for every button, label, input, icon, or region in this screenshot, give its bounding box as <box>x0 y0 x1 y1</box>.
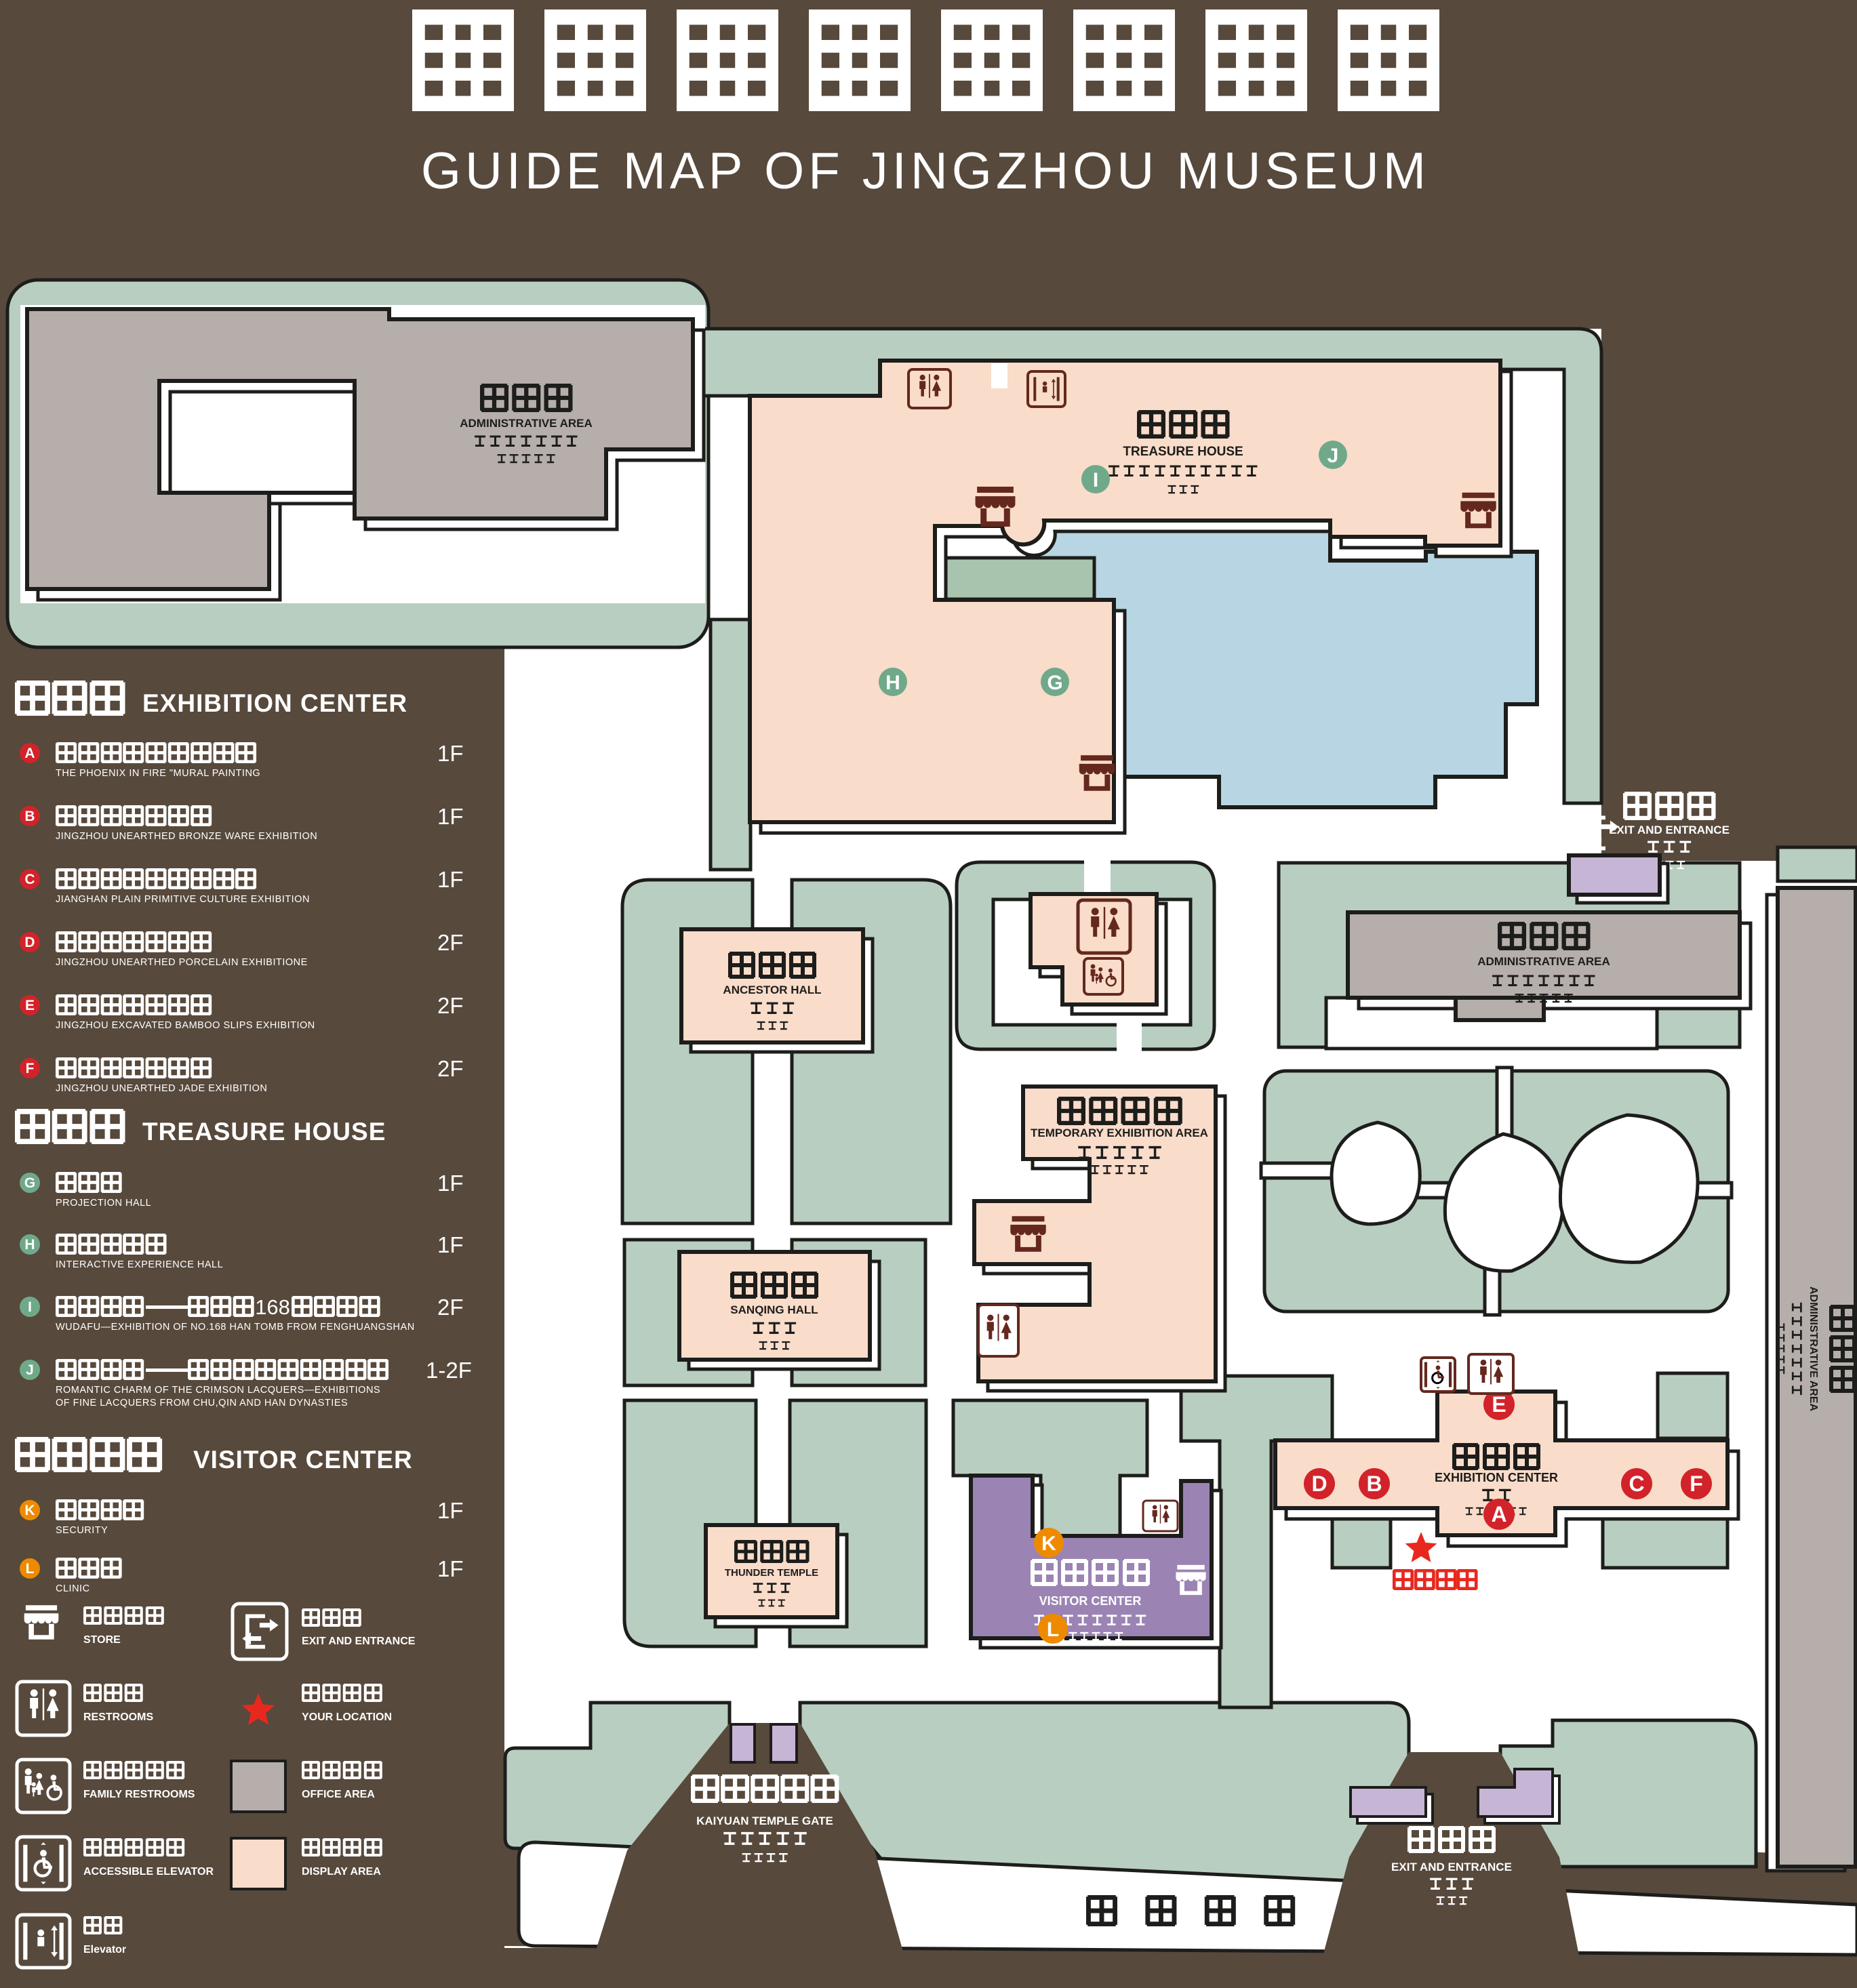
svg-text:GUIDE MAP OF JINGZHOU MUSEUM: GUIDE MAP OF JINGZHOU MUSEUM <box>421 142 1430 200</box>
svg-text:WUDAFU—EXHIBITION OF NO.168 HA: WUDAFU—EXHIBITION OF NO.168 HAN TOMB FRO… <box>56 1322 415 1333</box>
svg-text:JIANGHAN PLAIN PRIMITIVE CULTU: JIANGHAN PLAIN PRIMITIVE CULTURE EXHIBIT… <box>56 894 310 905</box>
svg-text:THE PHOENIX IN FIRE "MURAL PAI: THE PHOENIX IN FIRE "MURAL PAINTING <box>56 768 260 779</box>
svg-text:1F: 1F <box>437 1171 464 1196</box>
svg-text:JINGZHOU UNEARTHED JADE EXHIBI: JINGZHOU UNEARTHED JADE EXHIBITION <box>56 1083 267 1094</box>
svg-text:B: B <box>24 809 35 824</box>
svg-text:TREASURE HOUSE: TREASURE HOUSE <box>1123 445 1243 459</box>
svg-text:B: B <box>1366 1472 1382 1496</box>
svg-text:1F: 1F <box>437 804 464 829</box>
svg-text:D: D <box>24 935 35 950</box>
svg-text:H: H <box>24 1237 35 1253</box>
svg-text:OFFICE AREA: OFFICE AREA <box>302 1789 375 1800</box>
svg-text:ROMANTIC CHARM OF THE CRIMSON: ROMANTIC CHARM OF THE CRIMSON LACQUERS—E… <box>56 1385 380 1396</box>
svg-text:K: K <box>1041 1533 1056 1555</box>
svg-text:1F: 1F <box>437 1498 464 1523</box>
svg-text:2F: 2F <box>437 1295 464 1320</box>
svg-text:1-2F: 1-2F <box>426 1358 472 1383</box>
svg-text:K: K <box>24 1503 35 1518</box>
svg-text:L: L <box>1047 1619 1059 1641</box>
svg-text:STORE: STORE <box>83 1634 121 1646</box>
svg-text:TEMPORARY EXHIBITION AREA: TEMPORARY EXHIBITION AREA <box>1031 1127 1208 1139</box>
svg-text:F: F <box>26 1061 35 1076</box>
svg-text:KAIYUAN TEMPLE GATE: KAIYUAN TEMPLE GATE <box>696 1814 833 1827</box>
svg-text:ACCESSIBLE ELEVATOR: ACCESSIBLE ELEVATOR <box>83 1866 214 1878</box>
svg-text:A: A <box>1491 1502 1506 1526</box>
svg-text:ADMINISTRATIVE AREA: ADMINISTRATIVE AREA <box>460 417 593 430</box>
svg-text:SECURITY: SECURITY <box>56 1525 108 1536</box>
svg-text:EXIT AND ENTRANCE: EXIT AND ENTRANCE <box>302 1636 416 1647</box>
svg-text:VISITOR CENTER: VISITOR CENTER <box>193 1446 413 1474</box>
svg-text:OF FINE LACQUERS FROM CHU,QIN: OF FINE LACQUERS FROM CHU,QIN AND HAN DY… <box>56 1398 348 1408</box>
svg-text:EXHIBITION CENTER: EXHIBITION CENTER <box>1435 1471 1558 1484</box>
svg-text:TREASURE HOUSE: TREASURE HOUSE <box>142 1118 386 1145</box>
svg-text:1F: 1F <box>437 1556 464 1581</box>
svg-text:EXIT AND ENTRANCE: EXIT AND ENTRANCE <box>1391 1861 1512 1873</box>
svg-text:168: 168 <box>255 1295 290 1319</box>
svg-text:DISPLAY AREA: DISPLAY AREA <box>302 1866 381 1878</box>
svg-text:2F: 2F <box>437 1056 464 1081</box>
svg-text:1F: 1F <box>437 1232 464 1257</box>
svg-text:JINGZHOU UNEARTHED PORCELAIN E: JINGZHOU UNEARTHED PORCELAIN EXHIBITIONE <box>56 957 308 968</box>
svg-text:VISITOR CENTER: VISITOR CENTER <box>1039 1594 1142 1608</box>
svg-text:C: C <box>1629 1472 1644 1496</box>
svg-text:2F: 2F <box>437 993 464 1018</box>
svg-text:EXIT AND ENTRANCE: EXIT AND ENTRANCE <box>1609 824 1730 836</box>
svg-text:INTERACTIVE EXPERIENCE HALL: INTERACTIVE EXPERIENCE HALL <box>56 1259 223 1270</box>
svg-text:RESTROOMS: RESTROOMS <box>83 1711 153 1723</box>
svg-text:THUNDER TEMPLE: THUNDER TEMPLE <box>725 1567 818 1579</box>
svg-text:2F: 2F <box>437 930 464 955</box>
svg-text:I: I <box>28 1299 32 1315</box>
svg-text:F: F <box>1690 1472 1703 1496</box>
svg-text:C: C <box>24 872 35 887</box>
svg-text:I: I <box>1093 469 1098 491</box>
svg-text:ADMINISTRATIVE AREA: ADMINISTRATIVE AREA <box>1477 955 1610 968</box>
svg-text:E: E <box>25 998 35 1013</box>
svg-text:1F: 1F <box>437 741 464 766</box>
svg-text:PROJECTION HALL: PROJECTION HALL <box>56 1198 151 1209</box>
svg-text:JINGZHOU EXCAVATED BAMBOO SLIP: JINGZHOU EXCAVATED BAMBOO SLIPS EXHIBITI… <box>56 1020 315 1031</box>
svg-text:J: J <box>1327 445 1339 467</box>
svg-text:CLINIC: CLINIC <box>56 1583 90 1594</box>
svg-text:L: L <box>26 1561 35 1577</box>
svg-text:H: H <box>885 672 900 694</box>
svg-text:G: G <box>1047 672 1062 694</box>
svg-text:JINGZHOU UNEARTHED BRONZE WARE: JINGZHOU UNEARTHED BRONZE WARE EXHIBITIO… <box>56 831 317 842</box>
svg-text:EXHIBITION CENTER: EXHIBITION CENTER <box>142 689 407 717</box>
svg-text:E: E <box>1492 1392 1506 1417</box>
svg-text:FAMILY RESTROOMS: FAMILY RESTROOMS <box>83 1789 195 1800</box>
svg-text:SANQING HALL: SANQING HALL <box>730 1303 818 1316</box>
svg-text:ADMINISTRATIVE AREA: ADMINISTRATIVE AREA <box>1808 1286 1819 1411</box>
svg-text:G: G <box>24 1175 35 1191</box>
svg-text:A: A <box>24 746 35 761</box>
svg-text:Elevator: Elevator <box>83 1944 126 1955</box>
svg-text:ANCESTOR HALL: ANCESTOR HALL <box>723 983 821 996</box>
svg-text:D: D <box>1311 1472 1327 1496</box>
svg-text:1F: 1F <box>437 867 464 892</box>
svg-text:J: J <box>26 1362 34 1378</box>
svg-text:YOUR LOCATION: YOUR LOCATION <box>302 1711 392 1723</box>
